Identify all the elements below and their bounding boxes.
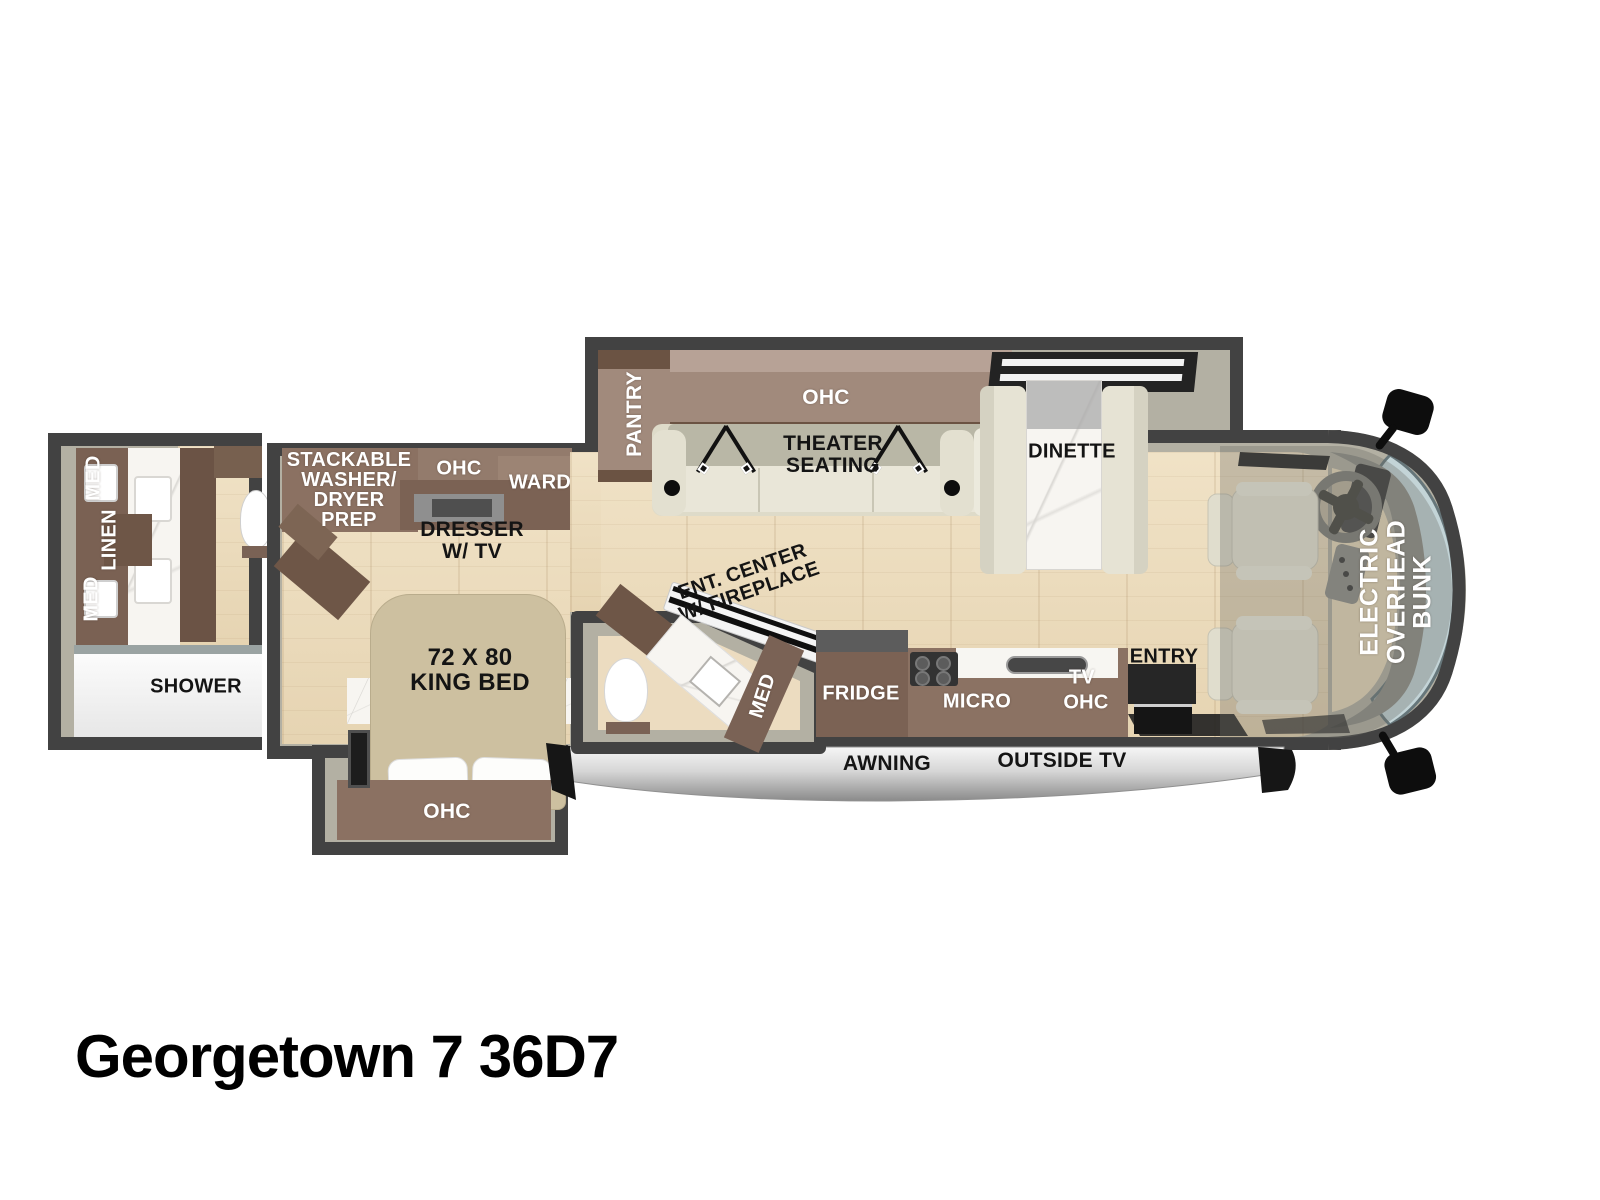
seat-seam: [758, 468, 760, 512]
entry-steps: [1128, 664, 1196, 704]
kitchen-tv-label: TV: [1069, 668, 1095, 689]
outside-tv-label: OUTSIDE TV: [997, 750, 1126, 772]
fridge-label: FRIDGE: [822, 684, 899, 705]
dinette-bench: [980, 386, 1026, 574]
dinette-label: DINETTE: [1028, 442, 1116, 463]
entry-steps: [1134, 704, 1192, 734]
awning-label: AWNING: [843, 753, 931, 775]
half-bath-toilet-shelf: [606, 722, 650, 734]
cooktop: [910, 652, 958, 686]
side-mirror-icon: [1374, 386, 1437, 457]
theater-armrest: [652, 430, 686, 516]
theater-seating-label: THEATERSEATING: [783, 433, 883, 477]
kitchen-ohc-label: OHC: [1063, 693, 1108, 714]
floorplan-title: Georgetown 7 36D7: [75, 1022, 618, 1091]
dinette-table-shadow: [1027, 381, 1101, 429]
dinette-window-pane: [1002, 359, 1185, 366]
cup-holder-dot: [664, 480, 680, 496]
cup-holder-dot: [944, 480, 960, 496]
dinette-bench: [1102, 386, 1148, 574]
living-ohc-label: OHC: [802, 387, 850, 409]
overhead-bunk-label: ELECTRICOVERHEADBUNK: [1356, 520, 1436, 664]
micro-label: MICRO: [943, 692, 1011, 713]
floorplan-canvas: MED LINEN MED SHOWER STACKABLEWASHER/ DR…: [0, 0, 1600, 1200]
side-mirror-icon: [1377, 725, 1439, 797]
fridge-top: [816, 630, 908, 654]
theater-armrest: [940, 430, 974, 516]
half-bath-toilet: [604, 658, 648, 722]
awning-end-cap: [1258, 747, 1296, 793]
entry-label: ENTRY: [1130, 647, 1199, 668]
pantry-label: PANTRY: [624, 371, 646, 457]
